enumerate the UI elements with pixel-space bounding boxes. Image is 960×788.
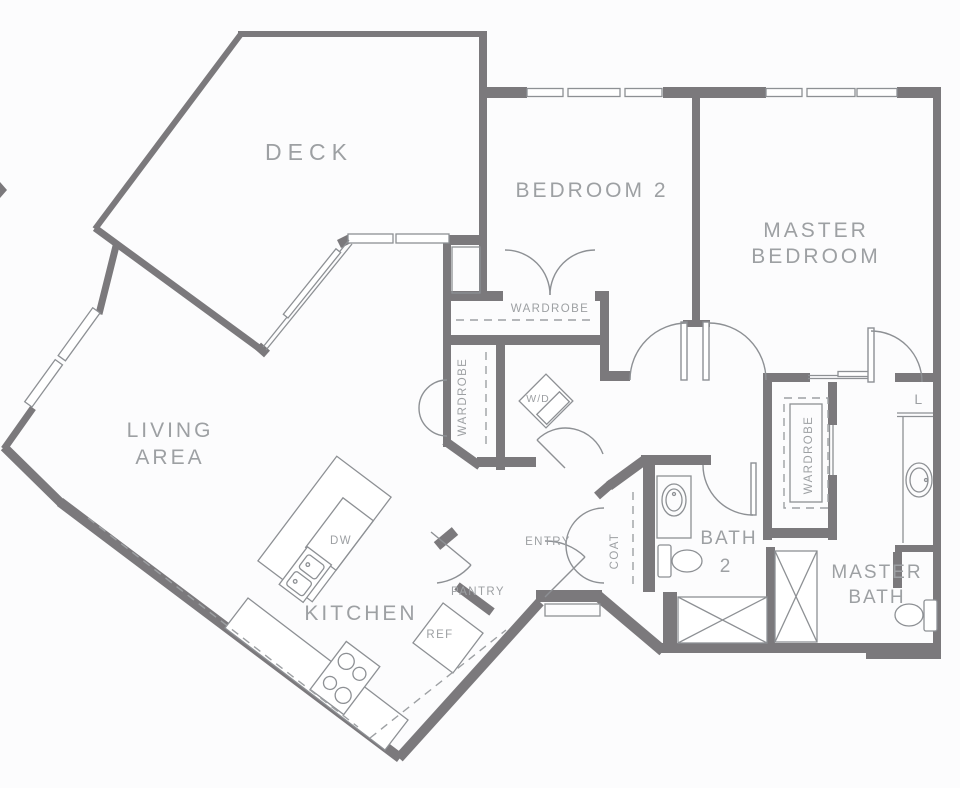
living-area-label: AREA — [135, 446, 204, 469]
wardrobe-french-doors — [505, 250, 595, 295]
chase-box — [452, 247, 480, 293]
wardrobe-label: WARDROBE — [511, 303, 590, 315]
kitchen-island — [258, 456, 391, 602]
master-bedroom-label: BEDROOM — [751, 245, 881, 268]
bedroom2-window — [527, 89, 563, 97]
master-bedroom-window — [857, 89, 897, 97]
master-bedroom-window — [766, 89, 802, 97]
sink-icon — [662, 484, 686, 516]
deck-sliding-door — [263, 240, 352, 350]
master-bedroom-door — [703, 322, 766, 380]
fixtures — [88, 247, 937, 750]
bedroom2-label: BEDROOM 2 — [515, 179, 668, 202]
shower-icon — [775, 551, 817, 642]
washer-dryer-label: W/D — [526, 393, 549, 405]
floor-plan-drawing: DECK BEDROOM 2 MASTER BEDROOM LIVING ARE… — [0, 0, 960, 788]
bath2-door — [703, 463, 756, 515]
bedroom2-door — [630, 322, 687, 380]
dishwasher-label: DW — [330, 535, 352, 547]
edge-artifact — [0, 182, 7, 198]
vanity-counter — [657, 476, 691, 538]
kitchen-label: KITCHEN — [304, 602, 417, 625]
living-area-label: LIVING — [127, 419, 214, 442]
coat-closet-bifold-doors — [566, 508, 604, 583]
master-bath-label: BATH — [848, 587, 905, 608]
master-bath-label: MASTER — [831, 562, 922, 583]
master-bedroom-window — [807, 89, 855, 97]
entry-door — [545, 541, 585, 597]
master-bedroom-label: MASTER — [763, 219, 869, 242]
bedroom2-window — [625, 89, 662, 97]
wardrobe-sliding-door — [830, 425, 834, 475]
wardrobe-label: WARDROBE — [457, 358, 469, 437]
entry-label: ENTRY — [525, 536, 571, 548]
deck-window — [348, 234, 393, 243]
master-sliding-door — [808, 372, 872, 379]
toilet-icon — [658, 545, 702, 577]
wardrobe-label: WARDROBE — [803, 416, 815, 495]
pantry-label: PANTRY — [451, 586, 505, 598]
deck-window — [396, 234, 449, 243]
bath2-label: 2 — [720, 556, 733, 577]
living-area-window — [25, 308, 100, 407]
linen-closet-label: L — [914, 391, 923, 407]
refrigerator-label: REF — [426, 629, 453, 641]
entry-step — [545, 604, 600, 616]
deck-label: DECK — [265, 139, 353, 165]
floor-plan: DECK BEDROOM 2 MASTER BEDROOM LIVING ARE… — [0, 0, 960, 788]
bathtub-icon — [678, 597, 767, 643]
coat-label: COAT — [609, 533, 621, 570]
bedroom2-window — [568, 89, 620, 97]
sink-icon — [906, 463, 932, 497]
bath2-label: BATH — [700, 528, 757, 549]
hall-closet-bifold-doors — [419, 380, 447, 436]
washer-dryer-door — [537, 428, 603, 468]
